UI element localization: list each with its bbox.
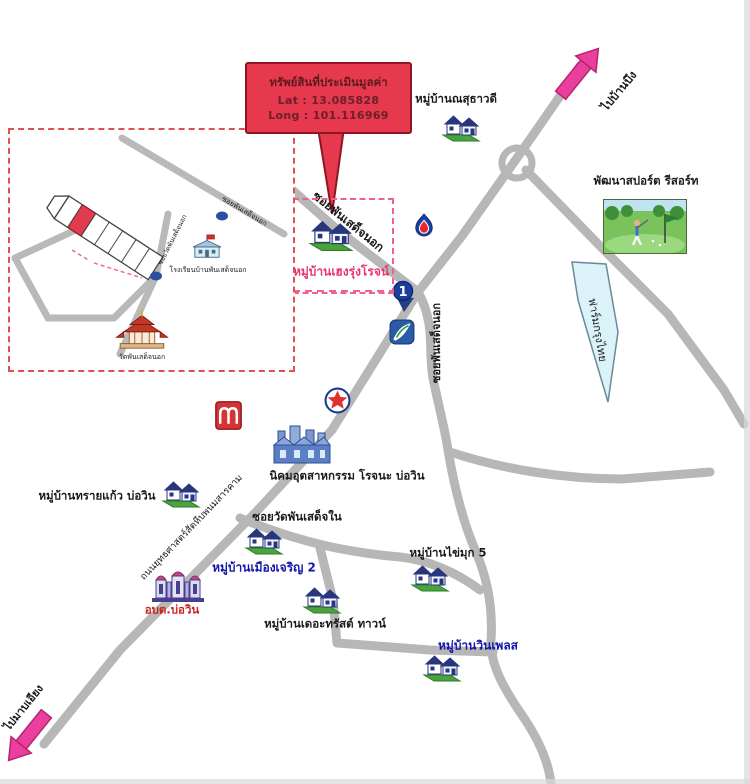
inset-junction-marker <box>216 212 228 221</box>
road-trust-town <box>320 548 493 652</box>
village-icon-the-trust-town <box>302 585 342 615</box>
callout-long: Long : 101.116969 <box>247 109 410 122</box>
village-label-sai-kaew: หมู่บ้านทรายแก้ว บ่อวิน <box>38 490 155 503</box>
village-label-khai-muk: หมู่บ้านไข่มุก 5 <box>410 547 487 560</box>
road-label-soi-vertical: ซอยพันเสด็จนอก <box>431 303 443 383</box>
village-icon-nathawadee <box>441 113 481 143</box>
village-label-win-place: หมู่บ้านวินเพลส <box>438 639 518 652</box>
bangchak-leaf-icon <box>389 319 415 345</box>
village-label-the-trust: หมู่บ้านเดอะทรัสต์ ทาวน์ <box>264 618 386 631</box>
road-khai-muk-branch <box>450 452 710 479</box>
callout-lat: Lat : 13.085828 <box>247 94 410 107</box>
temple-icon <box>114 310 170 350</box>
caltex-star-icon <box>324 387 351 414</box>
civic-building-icon-obt <box>150 568 206 604</box>
ptt-flame-icon <box>413 213 435 237</box>
village-label-nathawadee: หมู่บ้านณสุธาวดี <box>415 93 497 106</box>
village-icon-khai-muk <box>410 563 450 593</box>
svg-text:1: 1 <box>398 285 407 300</box>
village-icon-muang-charoen <box>244 526 284 556</box>
hand-drawn-location-map: 1 ทรัพย์สินที่ประเมินมูลค่า Lat : 13 <box>0 0 750 784</box>
village-icon-sai-kaew <box>161 479 201 509</box>
callout-title: ทรัพย์สินที่ประเมินมูลค่า <box>247 74 410 92</box>
inset-junction-marker <box>150 272 162 281</box>
industrial-label: นิคมอุตสาหกรรม โรจนะ บ่อวิน <box>269 470 424 483</box>
resort-label: พัฒนาสปอร์ต รีสอร์ท <box>593 175 698 188</box>
factory-icon-rojana <box>270 421 334 469</box>
village-label-muang-charoen: หมู่บ้านเมืองเจริญ 2 <box>212 561 316 574</box>
appraisal-callout: ทรัพย์สินที่ประเมินมูลค่า Lat : 13.08582… <box>245 62 412 134</box>
school-icon <box>188 233 226 261</box>
scan-edge-bottom <box>0 779 750 784</box>
arrow-to-ban-bueng <box>551 40 609 103</box>
inset-detail-map: โรงเรียนบ้านพันเสด็จนอก วัดพันเสด็จนอก ซ… <box>8 128 295 372</box>
village-label-heng-rung-rot: หมู่บ้านเฮงรุ่งโรจน์ <box>293 265 389 278</box>
obt-label: อบต.บ่อวิน <box>145 604 200 617</box>
road-label-soi-wat-nai: ซอยวัดพันเสด็จใน <box>252 511 341 524</box>
site-highlight-box <box>293 198 394 294</box>
inset-school-label: โรงเรียนบ้านพันเสด็จนอก <box>169 267 246 275</box>
market-gate-icon <box>215 401 242 430</box>
inset-temple-label: วัดพันเสด็จนอก <box>119 354 165 362</box>
village-icon-win-place <box>422 653 462 683</box>
scan-edge-right <box>744 0 750 784</box>
golf-resort-photo <box>603 199 687 254</box>
